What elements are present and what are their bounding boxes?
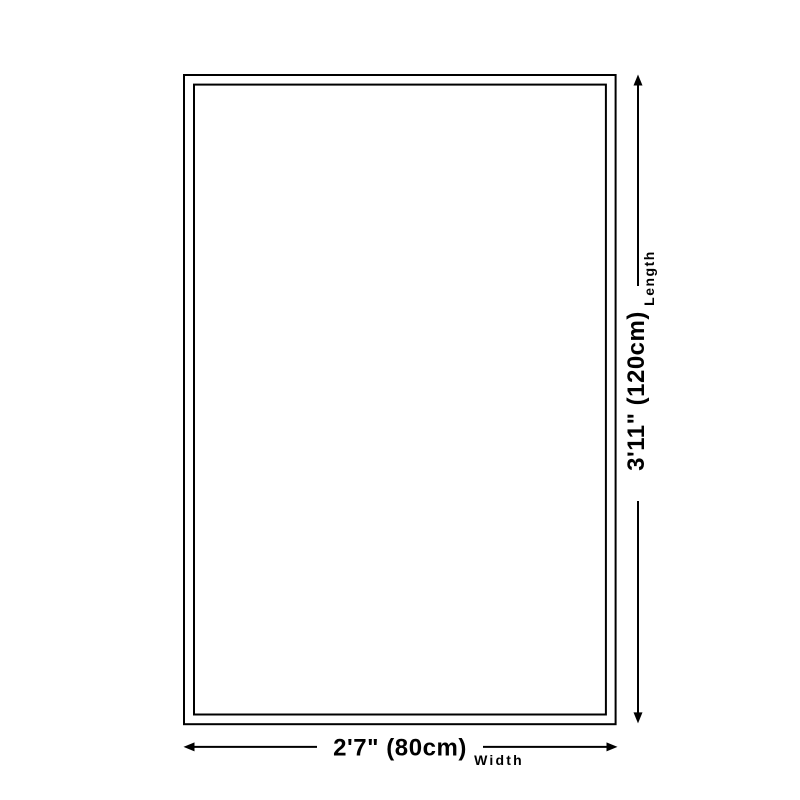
svg-text:3'11" (120cm): 3'11" (120cm) bbox=[623, 311, 650, 471]
svg-text:Width: Width bbox=[474, 752, 524, 768]
svg-text:2'7" (80cm): 2'7" (80cm) bbox=[333, 734, 467, 761]
svg-text:Length: Length bbox=[641, 250, 657, 306]
